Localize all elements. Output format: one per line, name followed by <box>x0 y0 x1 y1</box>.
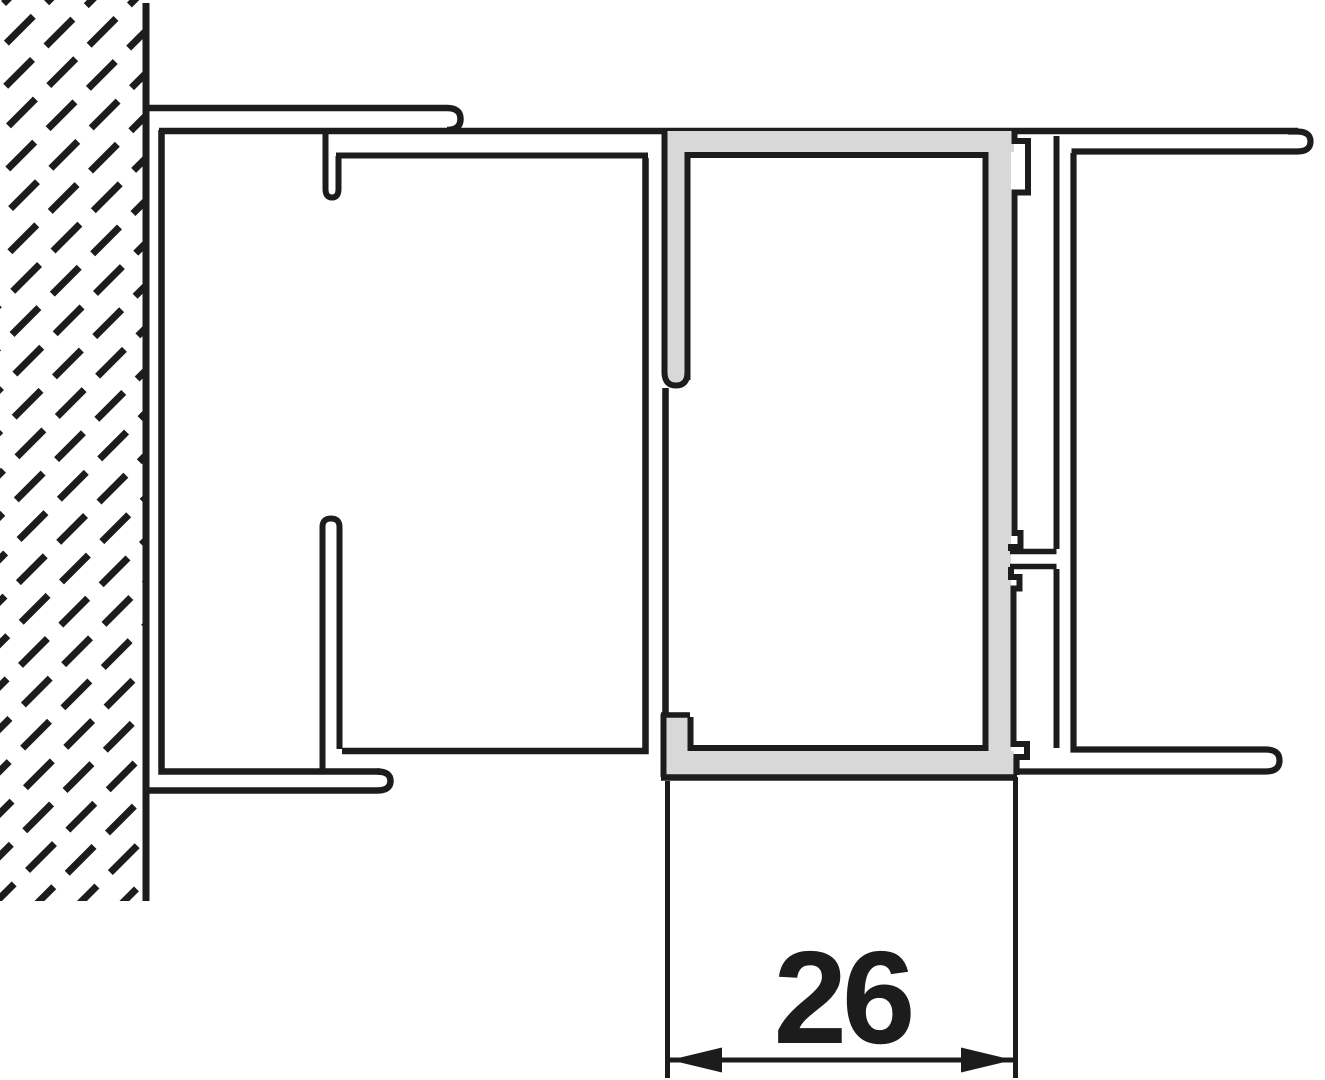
gray-top-bar <box>662 131 1014 152</box>
technical-drawing-page: 26 <box>0 0 1325 1080</box>
wall-hatching <box>0 0 147 901</box>
left-profile-top-flange <box>146 108 461 130</box>
left-profile-fin <box>323 519 340 770</box>
dimension-label: 26 <box>774 924 911 1071</box>
dimension-arrow-left <box>670 1048 722 1073</box>
gray-right-wall-outer-lower <box>1011 567 1027 775</box>
gray-right-wall <box>986 131 1011 776</box>
left-profile-right-wall <box>342 158 646 751</box>
gray-bottom-bar <box>662 751 1014 776</box>
left-profile-body <box>162 130 381 772</box>
dimension-annotation: 26 <box>668 777 1016 1078</box>
left-profile-hook <box>326 133 339 198</box>
right-profile-top-flange <box>1072 132 1311 152</box>
right-profile <box>1017 132 1311 772</box>
gray-right-wall-outer-upper <box>1011 130 1028 551</box>
gray-inner-frame-outline <box>688 155 986 748</box>
center-extension-profile <box>661 130 1057 778</box>
dimension-arrow-right <box>961 1048 1013 1073</box>
profile-cross-section-diagram: 26 <box>0 0 1325 1080</box>
left-wall-profile <box>146 108 1298 791</box>
gray-lower-left-wall <box>663 712 690 776</box>
